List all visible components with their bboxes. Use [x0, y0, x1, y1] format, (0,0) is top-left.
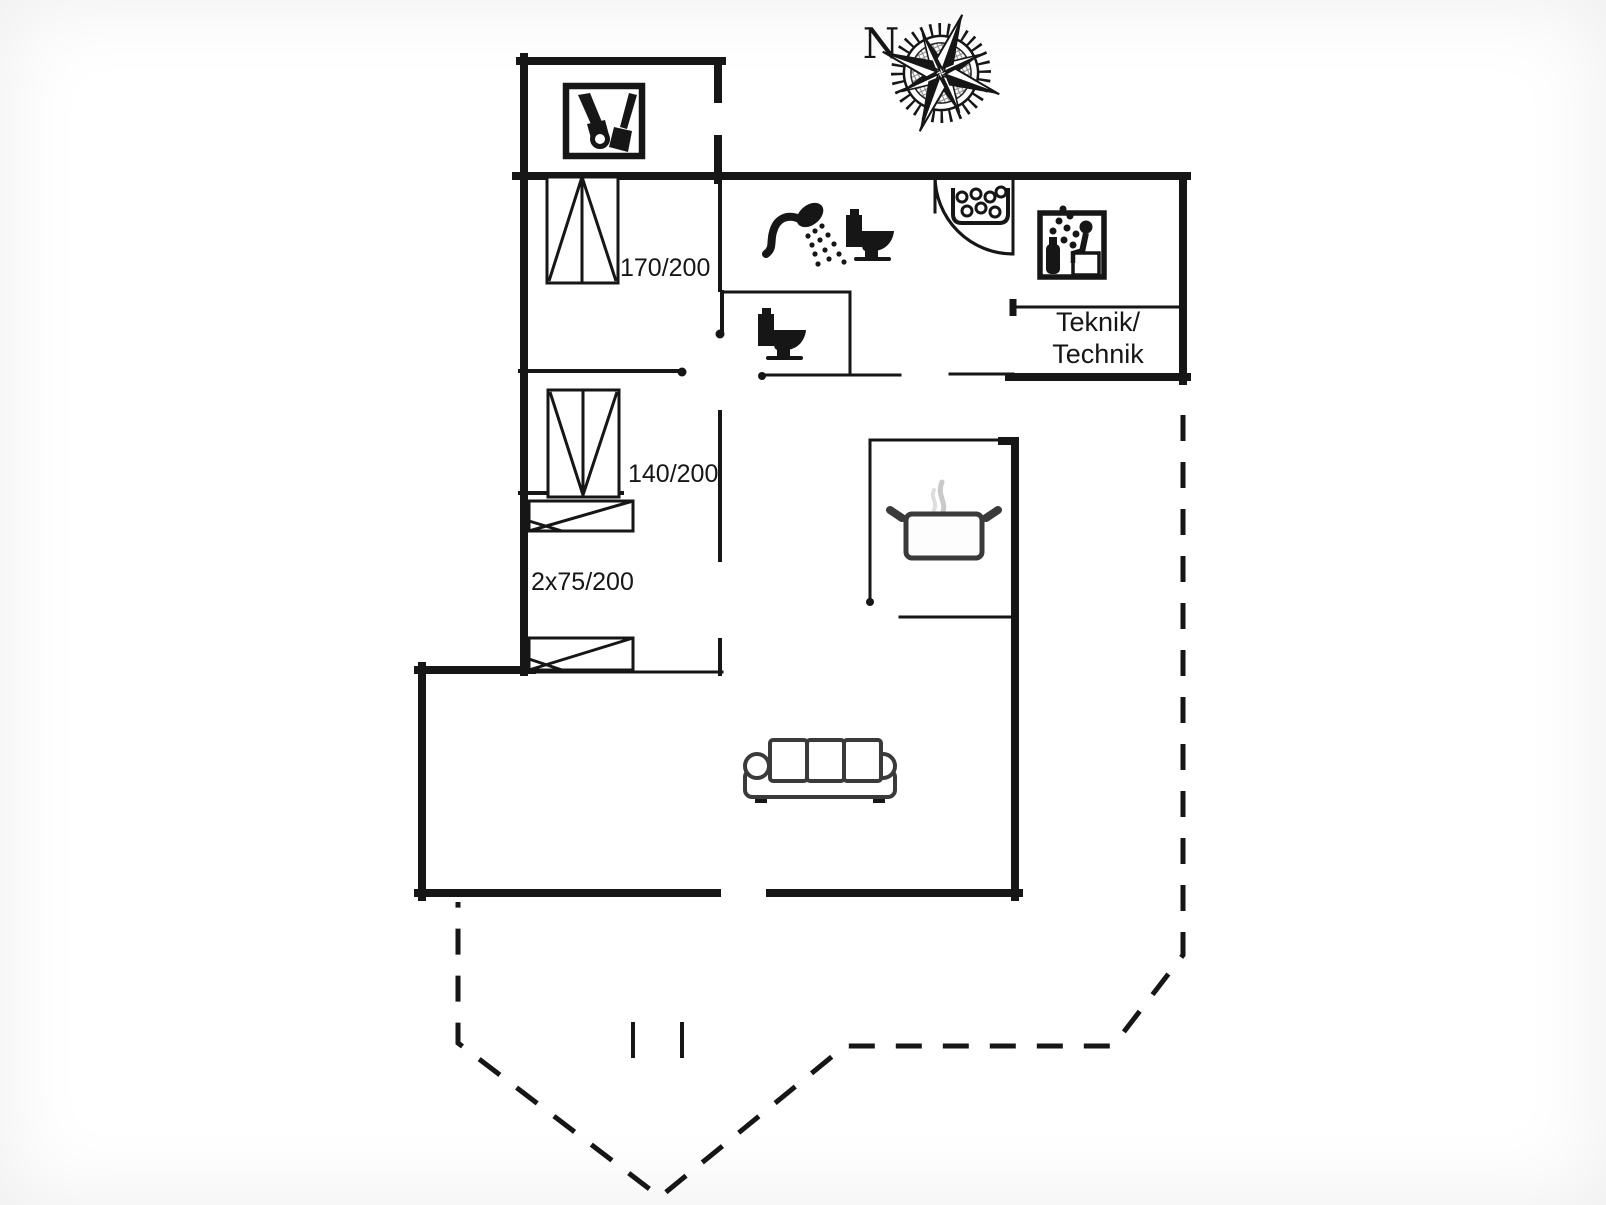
- bunk-bed-top: [529, 501, 633, 531]
- garden-tools-icon: [566, 86, 642, 156]
- bunk-bed-bottom: [529, 638, 633, 670]
- bunk-bed-label: 2x75/200: [531, 568, 634, 596]
- step-markers: [633, 1022, 682, 1058]
- bed-double-140: [548, 390, 619, 497]
- technical-room-label-line1: Teknik/: [1056, 307, 1141, 337]
- bed-label-140: 140/200: [628, 460, 718, 488]
- bed-double-170: [547, 177, 618, 283]
- technical-room-label-line2: Technik: [1052, 339, 1144, 369]
- shower-icon: [766, 198, 847, 267]
- floor-plan: N: [0, 0, 1606, 1205]
- sauna-heater-stones-icon: [953, 187, 1008, 223]
- bed-label-170: 170/200: [620, 254, 710, 282]
- cooking-pot-icon: [890, 482, 998, 558]
- north-label: N: [863, 19, 900, 68]
- floor-plan-page: N: [0, 0, 1606, 1205]
- sauna-person-icon: [1040, 206, 1104, 278]
- toilet-icon-bathroom: [846, 209, 894, 261]
- toilet-icon-wc: [758, 308, 806, 360]
- sofa-icon: [745, 740, 895, 803]
